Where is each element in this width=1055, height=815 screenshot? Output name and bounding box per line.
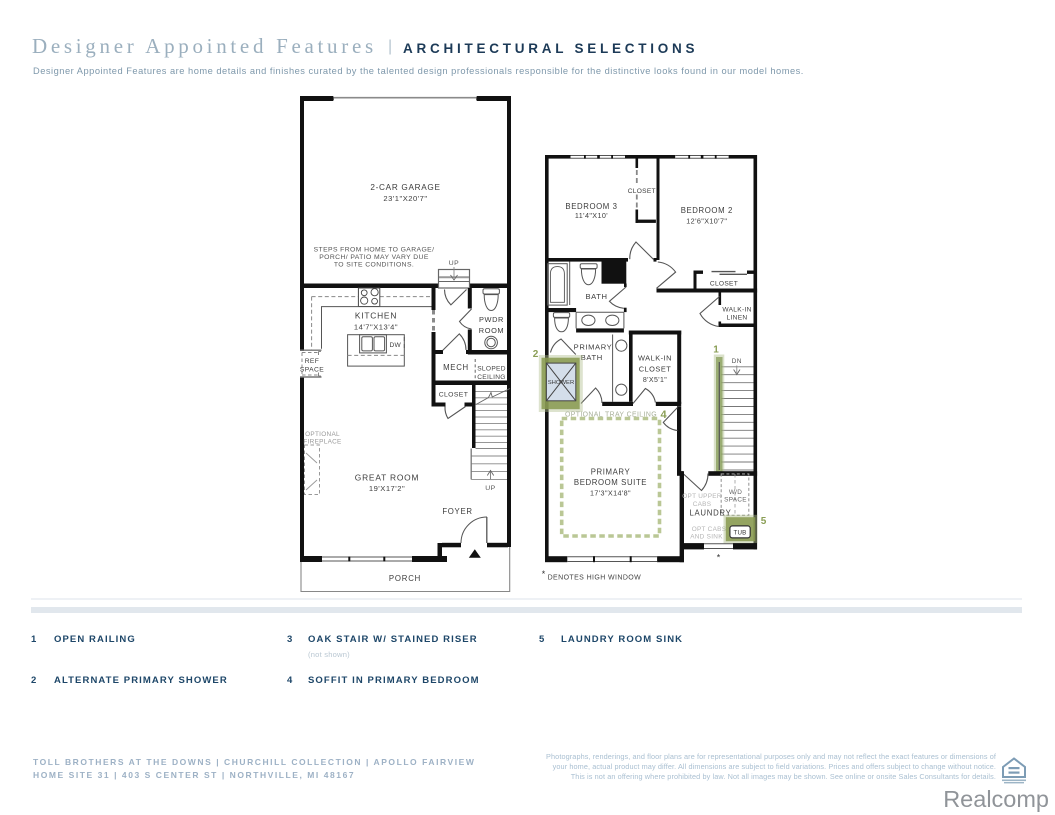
svg-text:CLOSET: CLOSET (639, 365, 672, 374)
svg-text:ROOM: ROOM (479, 326, 504, 335)
svg-text:W/D: W/D (729, 489, 742, 496)
svg-text:PRIMARY: PRIMARY (591, 468, 631, 477)
svg-text:TUB: TUB (734, 530, 747, 537)
svg-text:1: 1 (713, 345, 719, 356)
svg-text:KITCHEN: KITCHEN (355, 311, 397, 321)
svg-text:OPTIONAL TRAY CEILING: OPTIONAL TRAY CEILING (565, 412, 657, 419)
svg-text:DENOTES HIGH WINDOW: DENOTES HIGH WINDOW (548, 575, 642, 582)
svg-text:17'3"X14'8": 17'3"X14'8" (590, 489, 631, 498)
svg-text:PWDR: PWDR (479, 315, 504, 324)
svg-text:FOYER: FOYER (442, 507, 472, 516)
svg-text:WALK-IN: WALK-IN (722, 307, 751, 314)
svg-text:UP: UP (449, 260, 459, 267)
svg-text:19'X17'2": 19'X17'2" (369, 484, 405, 493)
svg-text:SPACE: SPACE (724, 497, 747, 504)
svg-text:BATH: BATH (585, 292, 607, 301)
svg-text:CABS: CABS (693, 501, 712, 508)
svg-text:WALK-IN: WALK-IN (638, 354, 672, 363)
svg-text:LINEN: LINEN (727, 315, 748, 322)
svg-text:14'7"X13'4": 14'7"X13'4" (354, 323, 398, 332)
svg-text:OPT UPPER: OPT UPPER (682, 493, 722, 500)
svg-text:SLOPED: SLOPED (477, 366, 506, 373)
svg-text:OPTIONAL: OPTIONAL (305, 431, 340, 438)
svg-text:12'6"X10'7": 12'6"X10'7" (686, 217, 727, 226)
svg-text:STEPS FROM HOME TO GARAGE/: STEPS FROM HOME TO GARAGE/ (314, 247, 435, 254)
svg-text:*: * (542, 569, 546, 579)
svg-text:UP: UP (485, 485, 495, 492)
svg-text:MECH: MECH (443, 363, 469, 372)
svg-text:BEDROOM 3: BEDROOM 3 (565, 202, 617, 211)
svg-text:8'X5'1": 8'X5'1" (643, 377, 667, 384)
svg-text:CEILING: CEILING (477, 374, 505, 381)
svg-text:DN: DN (732, 358, 742, 365)
svg-text:11'4"X10': 11'4"X10' (575, 211, 608, 220)
svg-text:FIREPLACE: FIREPLACE (303, 439, 341, 446)
svg-text:*: * (717, 553, 721, 563)
svg-text:CLOSET: CLOSET (628, 188, 656, 195)
svg-text:DW: DW (390, 342, 402, 349)
svg-text:2-CAR GARAGE: 2-CAR GARAGE (370, 183, 440, 192)
svg-text:SPACE: SPACE (300, 367, 324, 374)
svg-text:GREAT ROOM: GREAT ROOM (355, 473, 419, 483)
svg-text:TO SITE CONDITIONS.: TO SITE CONDITIONS. (334, 262, 414, 269)
svg-text:REF: REF (305, 358, 320, 365)
svg-text:SHOWER: SHOWER (548, 380, 575, 386)
svg-text:CLOSET: CLOSET (439, 392, 469, 399)
svg-text:23'1"X20'7": 23'1"X20'7" (383, 194, 427, 203)
svg-text:BEDROOM 2: BEDROOM 2 (681, 206, 733, 215)
svg-text:PORCH: PORCH (389, 574, 421, 583)
svg-text:CLOSET: CLOSET (710, 281, 738, 288)
svg-text:2: 2 (533, 349, 539, 360)
svg-text:AND SINK: AND SINK (690, 534, 723, 541)
svg-text:PORCH/ PATIO MAY VARY DUE: PORCH/ PATIO MAY VARY DUE (319, 254, 429, 261)
svg-text:OPT CABS: OPT CABS (692, 526, 727, 533)
svg-text:BATH: BATH (581, 353, 603, 362)
svg-text:PRIMARY: PRIMARY (574, 343, 613, 352)
svg-text:5: 5 (761, 516, 767, 527)
svg-text:BEDROOM SUITE: BEDROOM SUITE (574, 478, 647, 487)
